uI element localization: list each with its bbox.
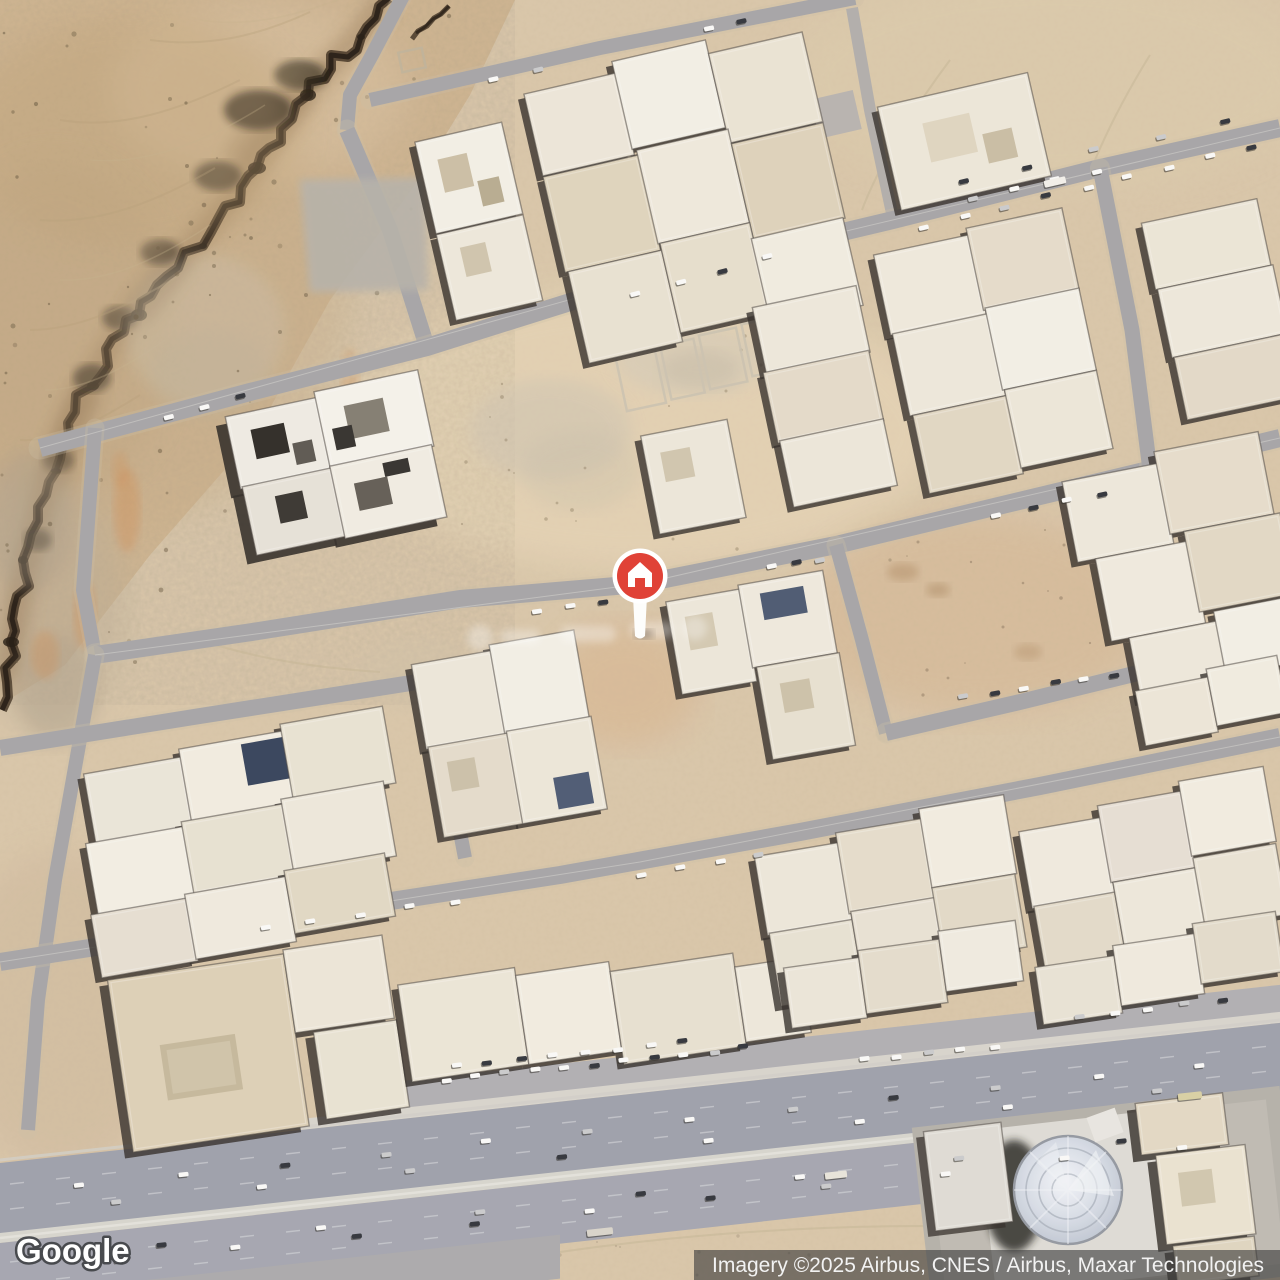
svg-text:Google: Google: [16, 1232, 130, 1269]
svg-text:Imagery ©2025 Airbus, CNES / A: Imagery ©2025 Airbus, CNES / Airbus, Max…: [712, 1254, 1264, 1277]
